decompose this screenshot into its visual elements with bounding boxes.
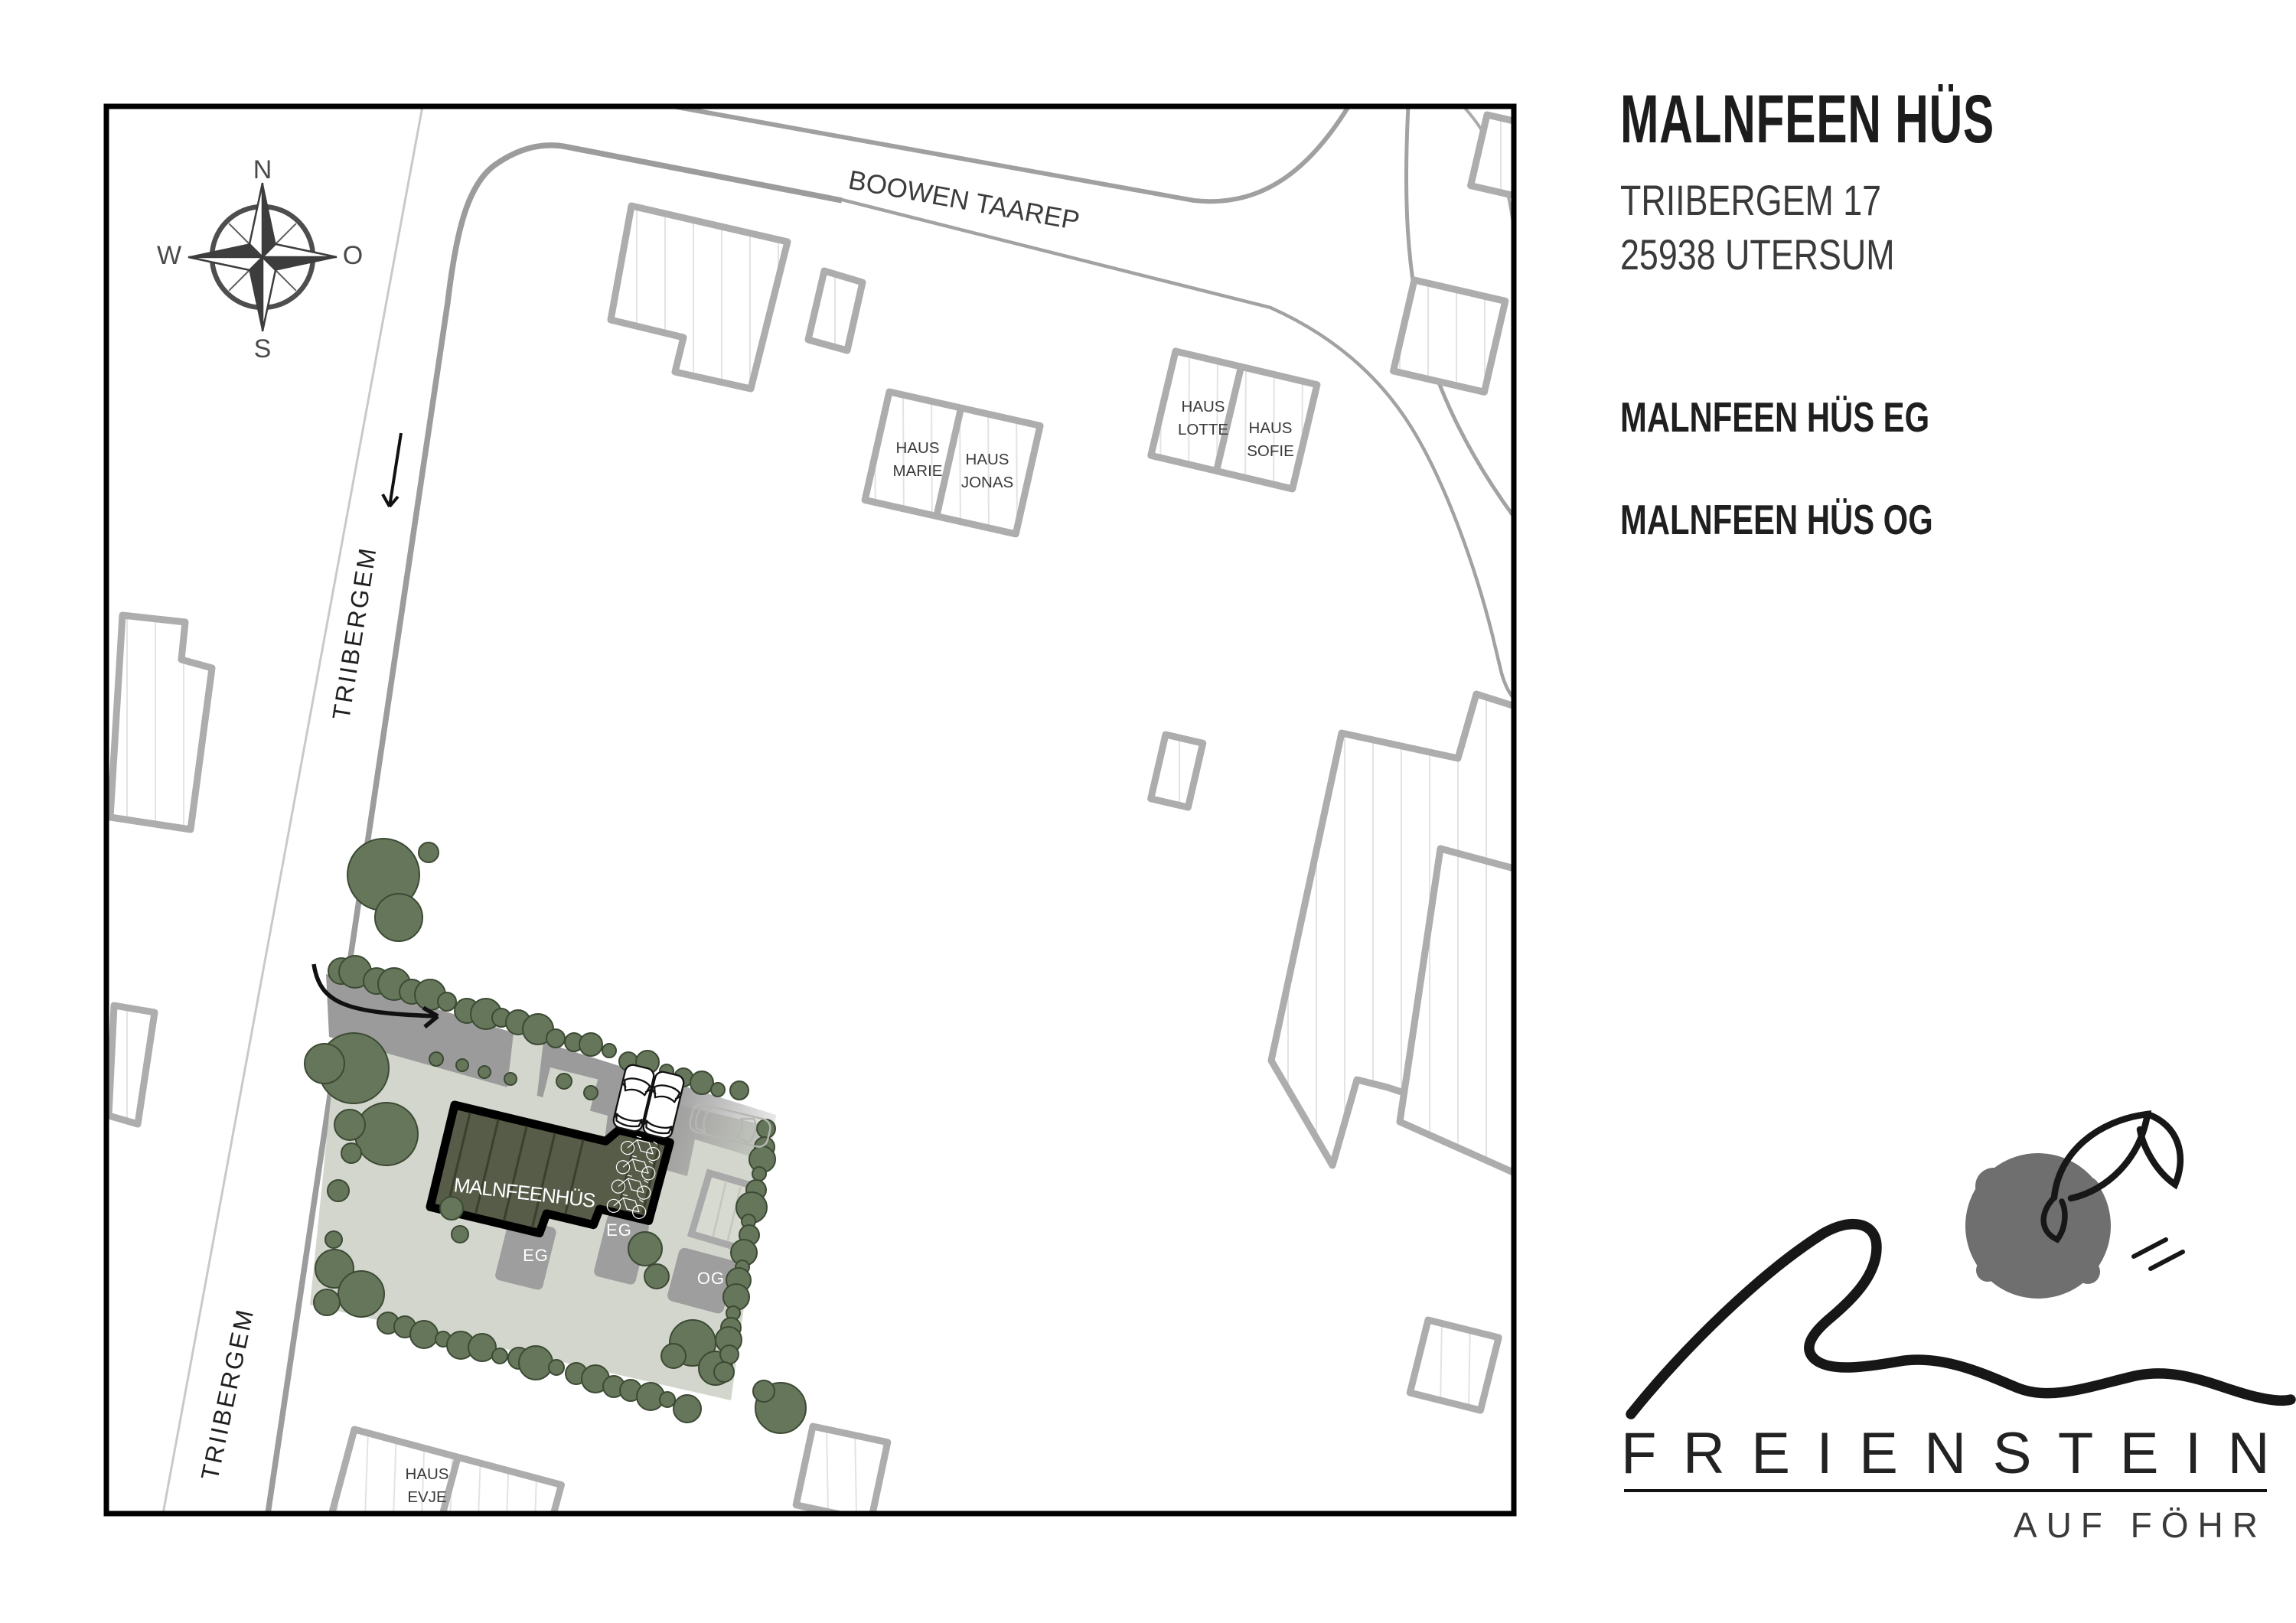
svg-text:S: S [254,334,272,363]
svg-text:HAUS: HAUS [896,439,940,457]
svg-text:EG: EG [606,1221,632,1240]
svg-text:O: O [343,241,363,270]
svg-text:W: W [157,241,181,270]
svg-text:SOFIE: SOFIE [1247,442,1294,460]
svg-text:TRIIBERGEM: TRIIBERGEM [196,1305,259,1483]
svg-text:HAUS: HAUS [1182,398,1225,416]
svg-text:N: N [253,155,272,184]
svg-text:OG: OG [697,1269,725,1288]
svg-text:LOTTE: LOTTE [1178,421,1228,438]
svg-text:EVJE: EVJE [407,1488,446,1506]
svg-text:HAUS: HAUS [406,1465,449,1483]
svg-text:MARIE: MARIE [893,462,943,480]
svg-text:HAUS: HAUS [1249,419,1293,437]
svg-text:EG: EG [523,1246,549,1265]
svg-text:TRIIBERGEM: TRIIBERGEM [327,544,381,722]
svg-text:HAUS: HAUS [966,451,1009,468]
svg-text:JONAS: JONAS [961,474,1013,491]
